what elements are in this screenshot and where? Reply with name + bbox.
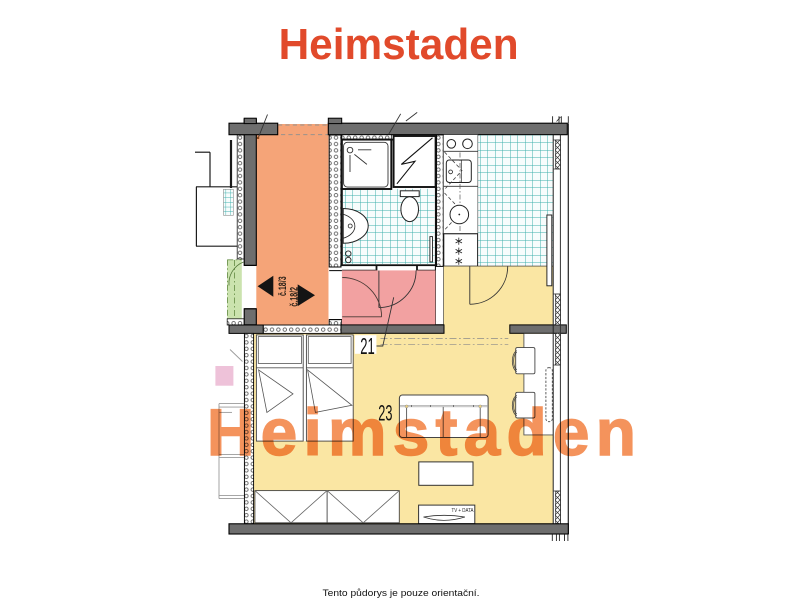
svg-text:Tento půdorys je pouze orienta: Tento půdorys je pouze orientační.	[323, 588, 480, 599]
svg-text:TV + DATA: TV + DATA	[452, 508, 475, 514]
svg-text:Heimstaden: Heimstaden	[207, 395, 636, 469]
svg-text:Heimstaden: Heimstaden	[279, 21, 519, 69]
svg-text:21: 21	[360, 334, 375, 360]
